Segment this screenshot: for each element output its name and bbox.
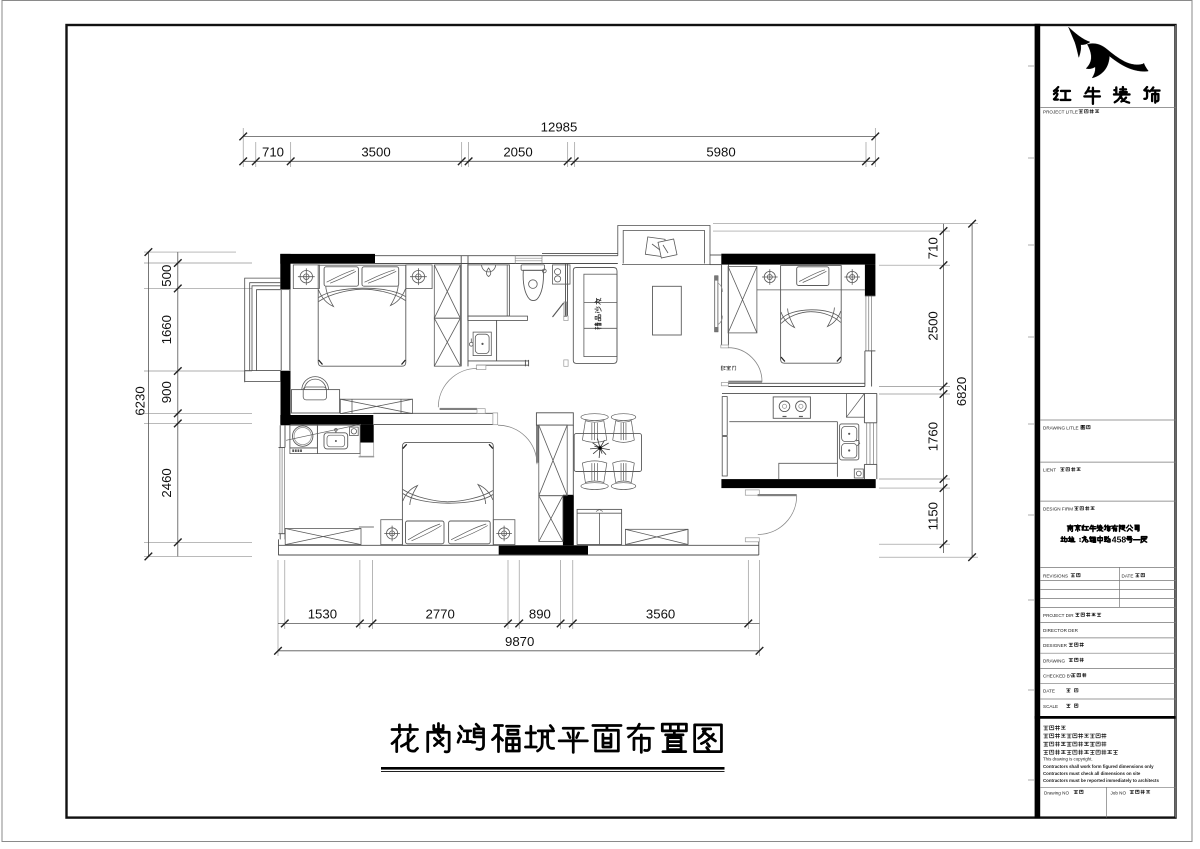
svg-text:Contractors must be reported i: Contractors must be reported immediately… xyxy=(1043,778,1159,783)
svg-text:12985: 12985 xyxy=(541,120,578,135)
svg-text:1660: 1660 xyxy=(159,315,174,344)
svg-text:DATE: DATE xyxy=(1043,689,1055,694)
svg-text:6820: 6820 xyxy=(954,377,969,406)
svg-text:Contractors must check all dim: Contractors must check all dimensions on… xyxy=(1043,771,1141,776)
svg-text:PROJECT DIR: PROJECT DIR xyxy=(1043,613,1074,618)
svg-text:2460: 2460 xyxy=(159,468,174,497)
svg-text:3560: 3560 xyxy=(646,607,675,622)
svg-text:DESIGN FIRM: DESIGN FIRM xyxy=(1043,507,1073,512)
svg-text:DIRECTOR DER: DIRECTOR DER xyxy=(1043,628,1079,633)
svg-text:DRAWING LITLE: DRAWING LITLE xyxy=(1043,426,1079,431)
svg-text:3500: 3500 xyxy=(361,144,390,159)
svg-text:900: 900 xyxy=(159,381,174,403)
svg-text:6230: 6230 xyxy=(133,386,148,415)
svg-text:1530: 1530 xyxy=(308,607,337,622)
svg-text:REVISIONS: REVISIONS xyxy=(1043,574,1068,579)
svg-text:Job NO: Job NO xyxy=(1111,790,1127,795)
svg-text:DRAWING: DRAWING xyxy=(1043,658,1065,663)
svg-text:500: 500 xyxy=(159,265,174,287)
svg-text:710: 710 xyxy=(925,237,940,259)
svg-text:9870: 9870 xyxy=(505,634,534,649)
svg-text:Contractors shall work form fi: Contractors shall work form figured dime… xyxy=(1043,764,1154,769)
svg-text:Drawing NO: Drawing NO xyxy=(1044,790,1069,795)
svg-text:2770: 2770 xyxy=(426,607,455,622)
svg-text:DATE: DATE xyxy=(1122,574,1134,579)
svg-text:CHECKED BY: CHECKED BY xyxy=(1043,674,1073,679)
svg-text:890: 890 xyxy=(529,607,551,622)
svg-text:DESIGNER: DESIGNER xyxy=(1043,643,1068,648)
svg-text:PROJECT LITLE: PROJECT LITLE xyxy=(1043,110,1078,115)
svg-text:This drawing is copyright.: This drawing is copyright. xyxy=(1043,756,1093,761)
svg-text:1760: 1760 xyxy=(925,422,940,451)
svg-text:458: 458 xyxy=(1112,535,1127,545)
svg-text:SCALE: SCALE xyxy=(1043,704,1058,709)
svg-text:5980: 5980 xyxy=(706,144,735,159)
svg-text:710: 710 xyxy=(262,144,284,159)
svg-text:2050: 2050 xyxy=(503,144,532,159)
svg-text:1150: 1150 xyxy=(925,502,940,530)
svg-text:LIENT: LIENT xyxy=(1043,468,1056,473)
svg-text:2500: 2500 xyxy=(925,311,940,340)
